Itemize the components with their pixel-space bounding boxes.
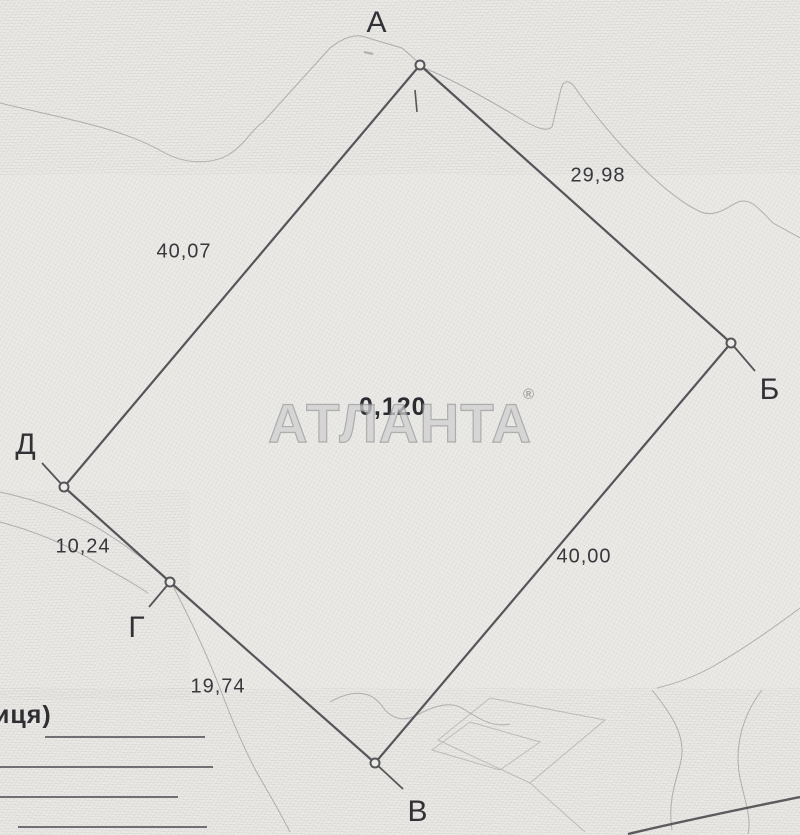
contour-top-right [424,68,800,238]
structure-outlines [432,698,605,832]
structure-outline-1 [438,698,605,783]
structure-diagonal [530,783,585,832]
street-label-fragment: иця) [0,701,52,730]
scanned-cadastral-plan: А Б В Г Д 29,98 40,00 19,74 10,24 40,07 … [0,0,800,835]
vertex-label-a: А [366,6,387,40]
side-length-d-a: 40,07 [156,241,211,264]
contour-bottom-right-2 [738,690,762,834]
vertex-label-b: Б [760,373,781,407]
form-ruled-lines [0,737,213,827]
vertex-marker-a [416,61,425,70]
leader-v [375,763,403,789]
small-dash-near-a [364,52,373,54]
side-length-g-d: 10,24 [55,536,110,559]
vertex-marker-v [371,759,380,768]
registered-trademark-icon: ® [523,386,534,403]
vertex-label-v: В [407,795,428,829]
side-length-a-b: 29,98 [570,165,625,188]
vertex-label-d: Д [15,428,36,462]
vertex-marker-b [727,339,736,348]
vertex-marker-g [166,578,175,587]
road-edge-arc [628,797,800,834]
tick-below-a [415,90,417,112]
contour-bottom-right-1 [652,690,682,830]
contour-slope-left [173,586,290,832]
side-length-b-v: 40,00 [556,546,611,569]
leader-b [731,343,755,371]
contour-right-slope [657,608,800,688]
side-length-v-g: 19,74 [190,676,245,699]
vertex-marker-d [60,483,69,492]
atlanta-watermark: АТЛАНТА [268,391,532,455]
vertex-label-g: Г [128,611,145,645]
